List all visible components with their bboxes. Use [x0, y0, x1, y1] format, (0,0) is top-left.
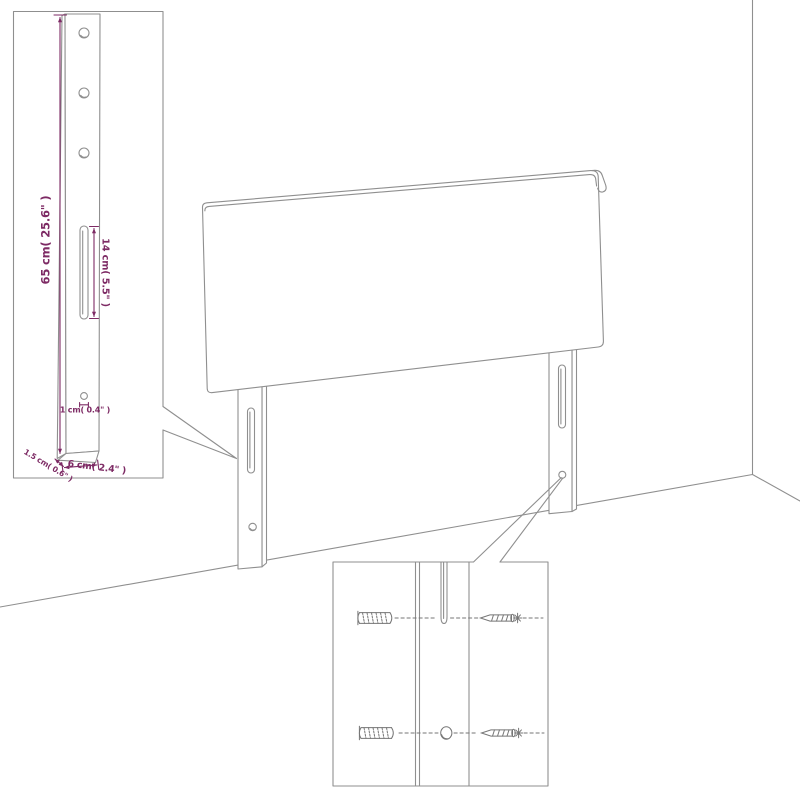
left-leg-side-face	[262, 385, 267, 567]
mounting-row-bottom	[359, 726, 544, 740]
floor-line-left	[0, 475, 753, 608]
mounting-detail-inset	[333, 562, 548, 786]
assembly-diagram: 65 cm( 25.6" ) 14 cm( 5.5" ) 1 cm( 0.4" …	[0, 0, 800, 800]
floor-line-right	[753, 475, 800, 502]
pilot-hole	[441, 727, 452, 739]
mounting-row-top	[358, 611, 543, 625]
right-leg-side-face	[572, 347, 577, 512]
headboard-outline	[202, 171, 603, 393]
headboard-panel	[202, 170, 606, 392]
leg-detail-inset: 65 cm( 25.6" ) 14 cm( 5.5" ) 1 cm( 0.4" …	[14, 12, 164, 484]
dim-hole-label: 1 cm( 0.4" )	[60, 406, 110, 415]
dim-height-label: 65 cm( 25.6" )	[39, 196, 53, 285]
dim-slot-label: 14 cm( 5.5" )	[100, 238, 111, 307]
inset2-leg-edges	[416, 562, 470, 786]
right-leg	[549, 343, 577, 514]
inset2-slot	[441, 562, 447, 624]
diagram-canvas: 65 cm( 25.6" ) 14 cm( 5.5" ) 1 cm( 0.4" …	[0, 0, 800, 800]
left-leg	[238, 380, 267, 569]
callout-wedge-left-leg	[163, 407, 237, 459]
dim-width-label: 6 cm( 2.4" )	[67, 458, 127, 476]
